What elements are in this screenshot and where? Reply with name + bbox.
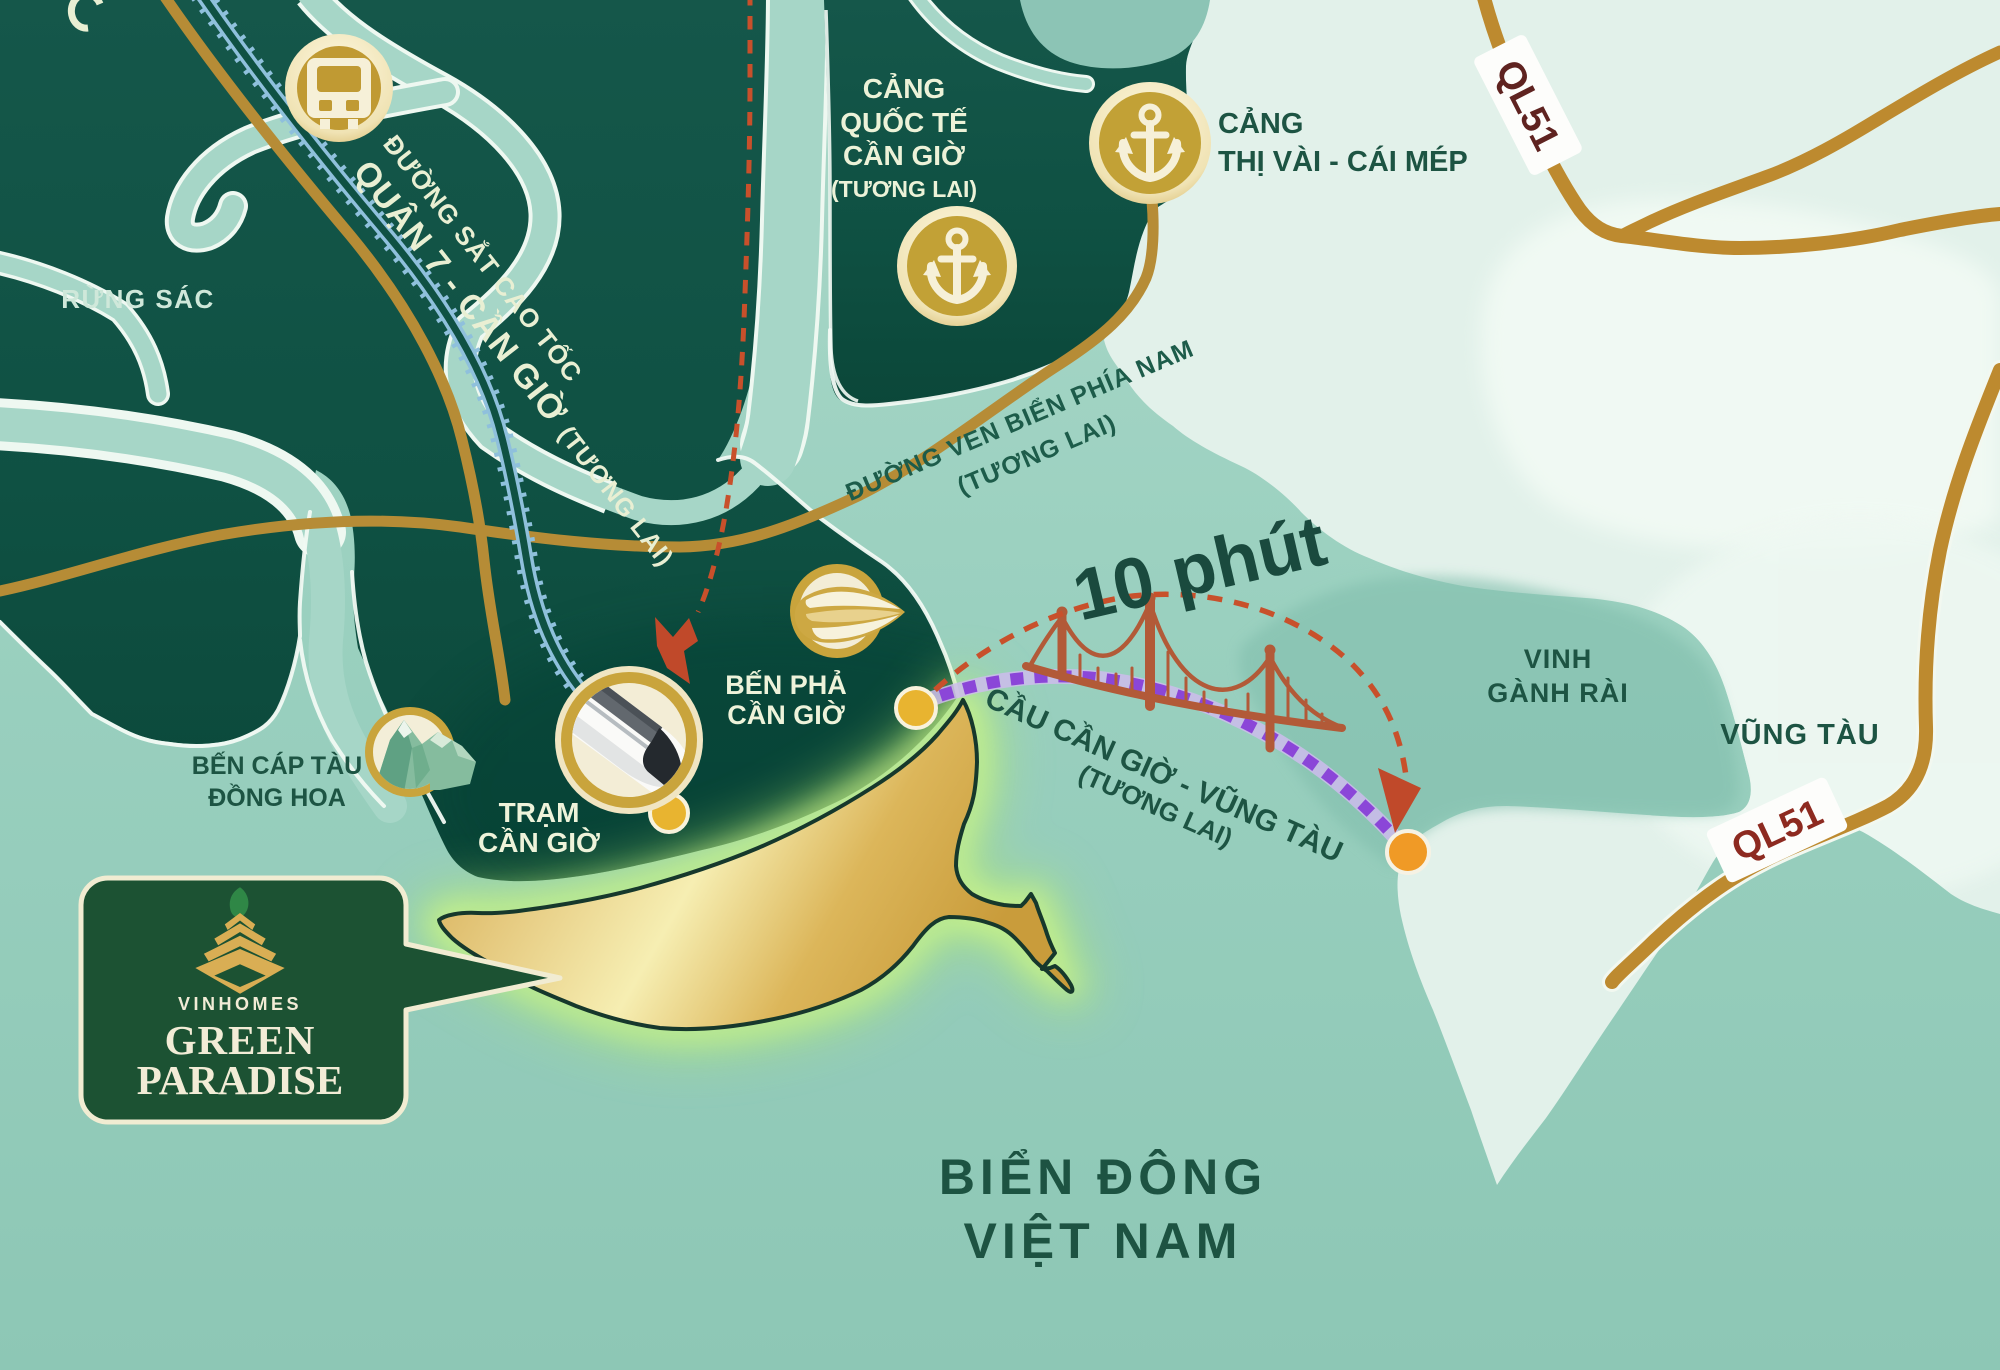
svg-text:VINH: VINH bbox=[1524, 644, 1593, 674]
svg-text:RỪNG SÁC: RỪNG SÁC bbox=[61, 284, 214, 314]
svg-text:TRẠM: TRẠM bbox=[499, 797, 580, 828]
svg-text:CẦN GIỜ: CẦN GIỜ bbox=[843, 140, 965, 171]
svg-text:GÀNH RÀI: GÀNH RÀI bbox=[1487, 677, 1629, 708]
svg-text:THỊ VÀI - CÁI MÉP: THỊ VÀI - CÁI MÉP bbox=[1218, 144, 1468, 178]
svg-text:CẦN GIỜ: CẦN GIỜ bbox=[478, 827, 600, 858]
svg-text:(TƯƠNG LAI): (TƯƠNG LAI) bbox=[831, 176, 977, 202]
svg-text:QUỐC TẾ: QUỐC TẾ bbox=[840, 106, 968, 138]
svg-text:CẢNG: CẢNG bbox=[863, 72, 945, 104]
svg-text:CẦN GIỜ: CẦN GIỜ bbox=[727, 699, 845, 730]
svg-text:PARADISE: PARADISE bbox=[137, 1057, 344, 1103]
svg-text:BẾN CÁP TÀU: BẾN CÁP TÀU bbox=[192, 751, 362, 780]
svg-text:VŨNG TÀU: VŨNG TÀU bbox=[1720, 717, 1879, 751]
svg-text:VINHOMES: VINHOMES bbox=[178, 994, 302, 1014]
svg-text:BẾN PHẢ: BẾN PHẢ bbox=[725, 668, 847, 700]
svg-text:CẢNG: CẢNG bbox=[1218, 106, 1303, 140]
svg-text:BIỂN ĐÔNG: BIỂN ĐÔNG bbox=[939, 1148, 1267, 1205]
svg-text:VIỆT NAM: VIỆT NAM bbox=[964, 1213, 1243, 1269]
svg-text:ĐỒNG HOA: ĐỒNG HOA bbox=[208, 782, 346, 812]
